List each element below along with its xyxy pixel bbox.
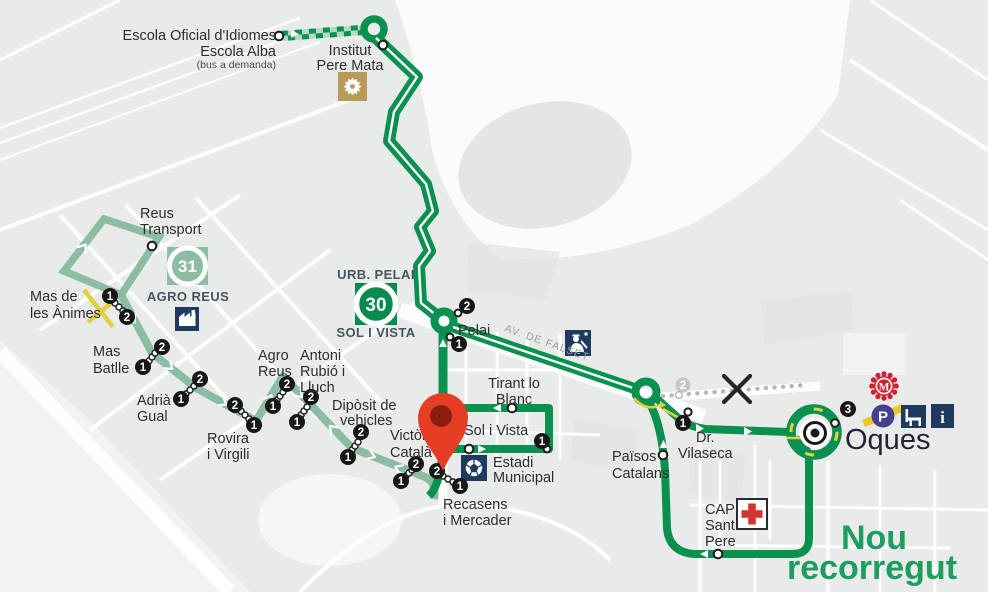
label-escola-1: Escola Oficial d'Idiomes [123,28,276,44]
stop-sol-vista [465,445,474,454]
label-vilaseca-1: Dr. [696,430,715,446]
svg-text:1: 1 [251,420,258,432]
terminus-bullseye-icon [800,418,831,449]
parking-letter: P [878,409,888,426]
pin-inner-circle [430,405,452,427]
label-estadi-1: Estadi [493,455,533,471]
svg-text:1: 1 [457,481,464,493]
route-31-badge: 31 [167,247,208,285]
svg-text:1: 1 [140,362,147,374]
label-escola-2: Escola Alba [200,44,277,60]
label-recasens-1: Recasens [443,497,507,513]
route-30-badge: 30 [355,283,397,325]
svg-text:2: 2 [434,466,440,478]
label-paisos-2: Catalans [612,466,669,482]
label-vilaseca-2: Vilaseca [678,446,733,462]
label-agro-stop-2: Reus [258,364,292,380]
label-cap-1: CAP [705,502,735,518]
route-31-number: 31 [178,257,197,276]
label-paisos-1: Països [612,449,656,465]
svg-text:1: 1 [345,452,352,464]
svg-text:1: 1 [107,291,114,303]
stop-oques-3: 3 [840,401,856,417]
svg-text:1: 1 [294,417,301,429]
old-stop-number: 2 [680,380,686,392]
pere-mata-logo-icon [338,72,367,101]
stop-reus-transport [148,242,157,251]
label-antoni-2: Rubió i [300,364,345,380]
stop-pelai-dot-1 [447,334,454,341]
label-cap-3: Pere [705,534,736,550]
svg-text:3: 3 [845,404,851,416]
svg-text:2: 2 [464,301,470,313]
label-diposit-2: vehicles [340,413,392,429]
info-letter: i [940,408,945,427]
label-victoria-2: Català [390,445,433,461]
label-mas-animes-1: Mas de [30,289,78,305]
svg-text:2: 2 [232,400,238,412]
label-recorregut: recorregut [787,549,957,587]
info-icon: i [931,404,954,428]
label-area-urb-pelai: URB. PELAI [337,267,415,282]
label-bus-demanda: (bus a demanda) [197,59,276,71]
health-center-icon [737,499,767,529]
label-antoni-3: Lluch [300,380,335,396]
stop-oques-dot [831,419,839,427]
label-recasens-2: i Mercader [443,513,512,529]
label-pelai: Pelai [458,323,490,339]
label-institut-2: Pere Mata [317,58,385,74]
label-oques: Oques [845,424,930,456]
label-cap-2: Sant [705,518,735,534]
stadium-icon [461,455,487,481]
bus-route-map: 2 31 30 [0,0,988,592]
label-mas-batlle-2: Batlle [93,361,129,377]
label-estadi-2: Municipal [493,470,554,486]
svg-text:1: 1 [456,339,463,351]
label-diposit-1: Dipòsit de [332,398,396,414]
label-adria-2: Gual [137,409,168,425]
label-tirant-2: Blanc [496,392,532,408]
map-canvas: 2 31 30 [0,0,988,592]
svg-text:2: 2 [197,374,203,386]
stop-paisos [659,451,668,460]
stop-solvista-corner: 1 [534,433,550,449]
svg-text:2: 2 [124,312,130,324]
label-institut-1: Institut [329,43,372,59]
svg-text:2: 2 [413,459,419,471]
label-adria-1: Adrià [137,393,172,409]
svg-text:2: 2 [284,379,290,391]
stop-vilaseca: 1 [675,415,691,431]
svg-text:1: 1 [398,476,405,488]
label-sol-vista: Sol i Vista [464,423,529,439]
factory-icon [175,307,199,331]
label-area-sol-i-vista: SOL I VISTA [336,325,415,340]
stop-cap [714,550,723,559]
mercat-letter: M [879,382,890,394]
label-agro-stop-1: Agro [258,348,289,364]
svg-text:2: 2 [358,427,364,439]
stop-pelai-dot-2 [455,310,462,317]
svg-text:1: 1 [178,394,185,406]
label-area-agro-reus: AGRO REUS [147,289,229,304]
label-antoni-1: Antoni [300,348,341,364]
label-reus-transport-2: Transport [140,222,202,238]
route-30-number: 30 [365,295,386,316]
label-rovira-2: i Virgili [207,447,249,463]
label-mas-batlle-1: Mas [93,344,120,360]
label-rovira-1: Rovira [207,431,250,447]
label-tirant-1: Tirant lo [488,376,540,392]
svg-text:1: 1 [539,436,546,448]
svg-text:2: 2 [159,342,165,354]
stop-institut [379,41,388,50]
stop-vilaseca-dot [684,408,691,415]
svg-text:1: 1 [270,401,277,413]
label-mas-animes-2: les Ànimes [30,305,101,322]
label-reus-transport-1: Reus [140,206,174,222]
svg-text:1: 1 [680,418,687,430]
